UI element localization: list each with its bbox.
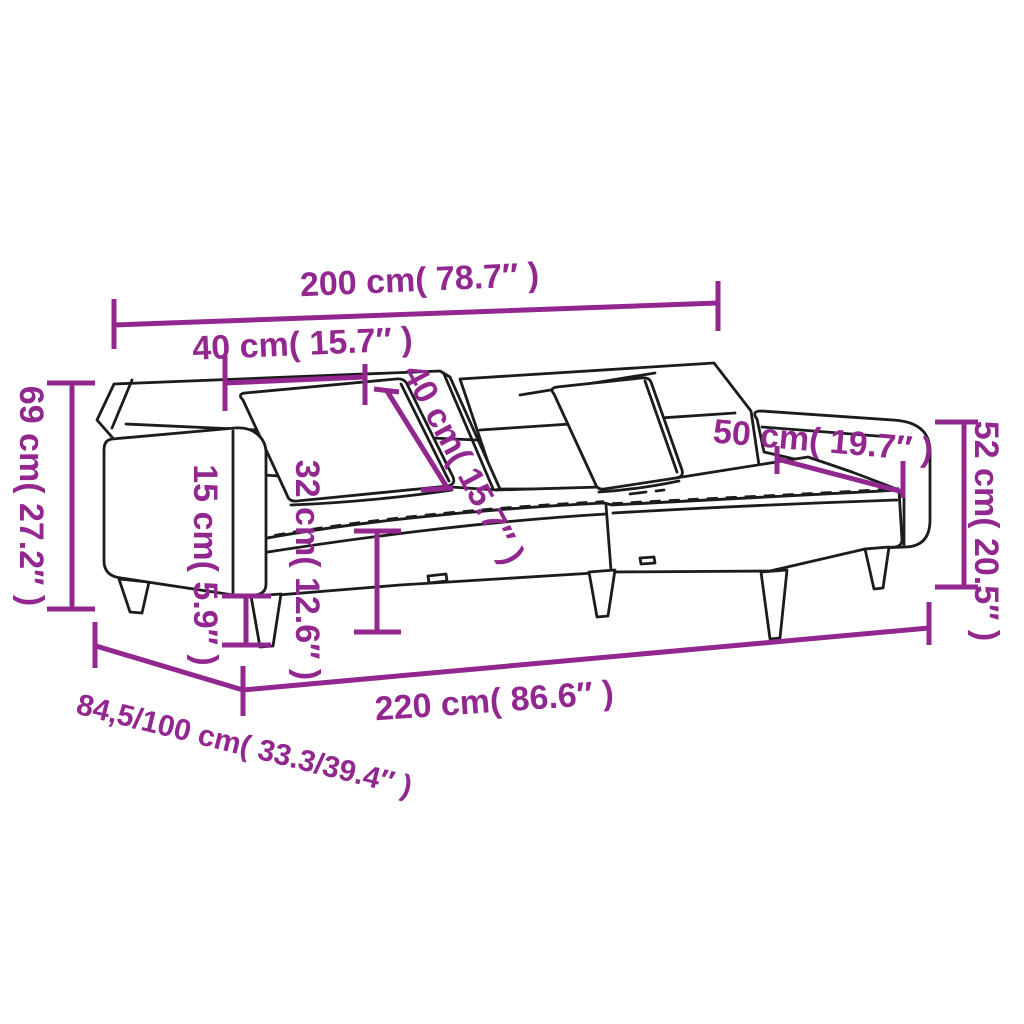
dim-overall-height-label: 69 cm( 27.2″ ): [12, 386, 50, 606]
dim-armrest-height-label: 52 cm( 20.5″ ): [967, 421, 1005, 641]
dim-leg-height-label: 15 cm( 5.9″ ): [186, 464, 224, 666]
sofa-leg-middle: [589, 570, 615, 617]
sofa-leg-back-left: [119, 579, 149, 613]
dim-total-width-label: 200 cm( 78.7″ ): [299, 256, 540, 304]
dim-armrest-height: 52 cm( 20.5″ ): [935, 421, 1005, 641]
dim-total-length: 220 cm( 86.6″ ): [243, 602, 929, 728]
sofa-armrest-left: [104, 428, 266, 596]
dim-seat-height-label: 32 cm( 12.6″ ): [288, 460, 326, 680]
sofa-leg-back-right: [865, 547, 889, 589]
dim-total-length-label: 220 cm( 86.6″ ): [374, 674, 615, 729]
sofa-leg-front-left: [251, 594, 281, 647]
dim-overall-height: 69 cm( 27.2″ ): [12, 383, 95, 609]
sofa-diagram-canvas: 200 cm( 78.7″ ) 40 cm( 15.7″ ) 40 cm( 15…: [0, 0, 1024, 1024]
sofa-leg-front-right: [761, 570, 787, 639]
dim-pillow-width-label: 40 cm( 15.7″ ): [192, 320, 414, 368]
dimension-diagram: 200 cm( 78.7″ ) 40 cm( 15.7″ ) 40 cm( 15…: [0, 0, 1024, 1024]
